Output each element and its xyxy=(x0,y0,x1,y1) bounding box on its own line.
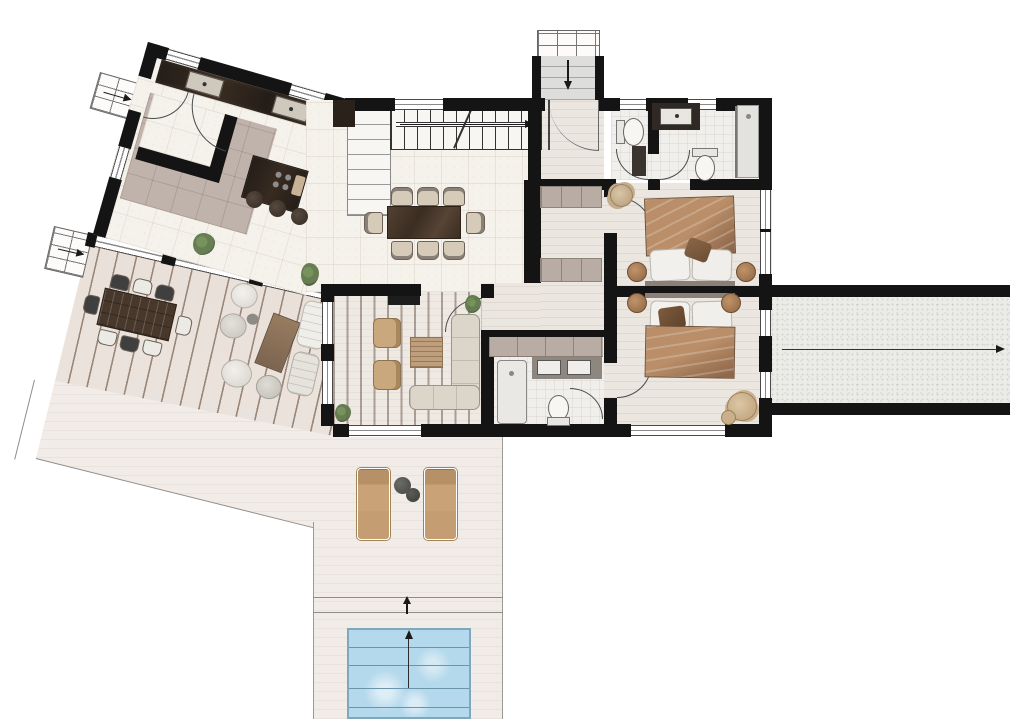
window xyxy=(760,190,771,274)
dining-chair xyxy=(443,187,465,206)
dining-chair xyxy=(391,241,413,260)
bed1-headboard xyxy=(645,281,735,286)
window xyxy=(631,425,725,436)
outdoor-chair xyxy=(82,294,101,316)
patio-divider-line-2 xyxy=(313,612,503,613)
lounge-chair xyxy=(217,311,249,341)
pool-lane-line xyxy=(349,688,469,689)
hall-wardrobe-upper xyxy=(540,186,602,208)
bed2-nightstand xyxy=(627,293,647,313)
side-steps-lower-arrow-stem xyxy=(58,248,78,254)
lounge-chair xyxy=(253,372,284,401)
counter-end xyxy=(333,100,355,127)
bath-basin xyxy=(660,108,692,125)
wall-segment xyxy=(604,233,617,363)
bath-toilet-bowl xyxy=(695,155,715,181)
burner-dot xyxy=(284,174,291,181)
pool xyxy=(347,628,471,719)
wall-segment xyxy=(321,344,334,361)
outdoor-chair xyxy=(96,329,118,348)
bedroom1-pouf xyxy=(610,184,633,207)
armchair xyxy=(373,360,401,390)
window xyxy=(620,99,646,110)
outdoor-chair xyxy=(118,335,140,354)
wc-vanity xyxy=(632,146,646,176)
burner-dot xyxy=(282,183,289,190)
wall-segment xyxy=(333,284,421,296)
bed2-duvet xyxy=(645,325,736,379)
tv xyxy=(388,296,420,305)
ensuite-wardrobe xyxy=(489,337,603,357)
bar-stool xyxy=(291,208,308,225)
entry-steps-upper xyxy=(537,30,600,59)
pool-center-line xyxy=(408,638,409,688)
wall-segment xyxy=(321,404,334,426)
dining-table xyxy=(387,206,461,239)
dining-chair xyxy=(364,212,383,234)
entry-steps-arrow-stem xyxy=(567,60,569,82)
coffee-table xyxy=(410,337,443,368)
floor-plan-canvas xyxy=(0,0,1024,719)
entry-steps-wall-left xyxy=(532,56,541,100)
shower-drain xyxy=(746,114,751,119)
wall-segment xyxy=(759,336,772,372)
faucet-dot xyxy=(202,82,207,87)
sun-lounger xyxy=(424,468,457,540)
window xyxy=(322,361,333,404)
wall-segment xyxy=(93,177,122,238)
wall-segment xyxy=(333,424,349,437)
window xyxy=(760,310,771,336)
entry-steps-arrow xyxy=(564,81,572,90)
outdoor-chair xyxy=(141,339,163,358)
driveway-wall-bottom xyxy=(768,403,1010,415)
dining-chair xyxy=(391,187,413,206)
armchair xyxy=(373,318,401,348)
outdoor-chair xyxy=(132,277,154,296)
faucet-dot xyxy=(675,114,679,118)
wall-segment xyxy=(528,100,541,180)
wall-segment xyxy=(725,424,772,437)
driveway-centerline xyxy=(782,349,996,350)
lounge-chair xyxy=(218,356,255,390)
bed2-nightstand xyxy=(721,293,741,313)
pool-arrow xyxy=(405,630,413,639)
sun-lounger xyxy=(357,468,390,540)
dining-chair xyxy=(417,187,439,206)
bar-stool xyxy=(269,200,286,217)
side-steps-upper-arrow-stem xyxy=(103,91,125,98)
patio-outline-left xyxy=(14,380,35,460)
wall-segment xyxy=(481,284,494,298)
driveway-arrow xyxy=(996,345,1005,353)
patio-edge-leftline xyxy=(313,522,314,719)
driveway-wall-top xyxy=(768,285,1010,297)
wall-segment xyxy=(759,98,772,190)
window xyxy=(395,99,443,110)
ensuite-toilet-tank xyxy=(547,417,570,426)
window-mullion xyxy=(760,229,771,232)
patio-edge-right xyxy=(502,437,503,719)
burner-dot xyxy=(275,171,282,178)
bedroom2-ottoman xyxy=(721,410,736,425)
side-steps-lower-arrow xyxy=(76,249,86,259)
wall-segment xyxy=(759,298,772,310)
ensuite-shower xyxy=(497,360,527,424)
shower-drain xyxy=(509,371,514,376)
wall-segment xyxy=(604,398,617,430)
wall-segment xyxy=(421,424,631,437)
wall-segment xyxy=(598,98,620,111)
shower-glass xyxy=(735,106,737,178)
dining-chair xyxy=(443,241,465,260)
bed1-nightstand xyxy=(736,262,756,282)
ensuite-basin xyxy=(567,360,591,375)
pool-lane-line xyxy=(349,707,469,708)
patio-arrow-stem xyxy=(406,603,407,614)
entry-steps-wall-right xyxy=(595,56,604,100)
burner-dot xyxy=(272,181,279,188)
window xyxy=(322,302,333,344)
shower-pan xyxy=(737,105,759,178)
lounge-cushion xyxy=(246,312,260,325)
outdoor-chair xyxy=(174,315,193,337)
bar-stool xyxy=(246,191,263,208)
wall-segment xyxy=(648,179,660,190)
wc-toilet-bowl xyxy=(623,118,644,146)
wall-segment xyxy=(524,180,541,283)
hall-wardrobe-lower xyxy=(540,258,602,282)
patio-side-table xyxy=(406,488,420,502)
ensuite-basin xyxy=(537,360,561,375)
island-cooktop xyxy=(272,171,294,193)
sofa-horizontal xyxy=(409,385,480,410)
wardrobe-back-wall xyxy=(487,330,604,337)
window xyxy=(760,372,771,398)
bed1-nightstand xyxy=(627,262,647,282)
slider-window xyxy=(349,425,421,436)
dining-chair xyxy=(466,212,485,234)
faucet-dot xyxy=(289,107,294,112)
dining-chair xyxy=(417,241,439,260)
